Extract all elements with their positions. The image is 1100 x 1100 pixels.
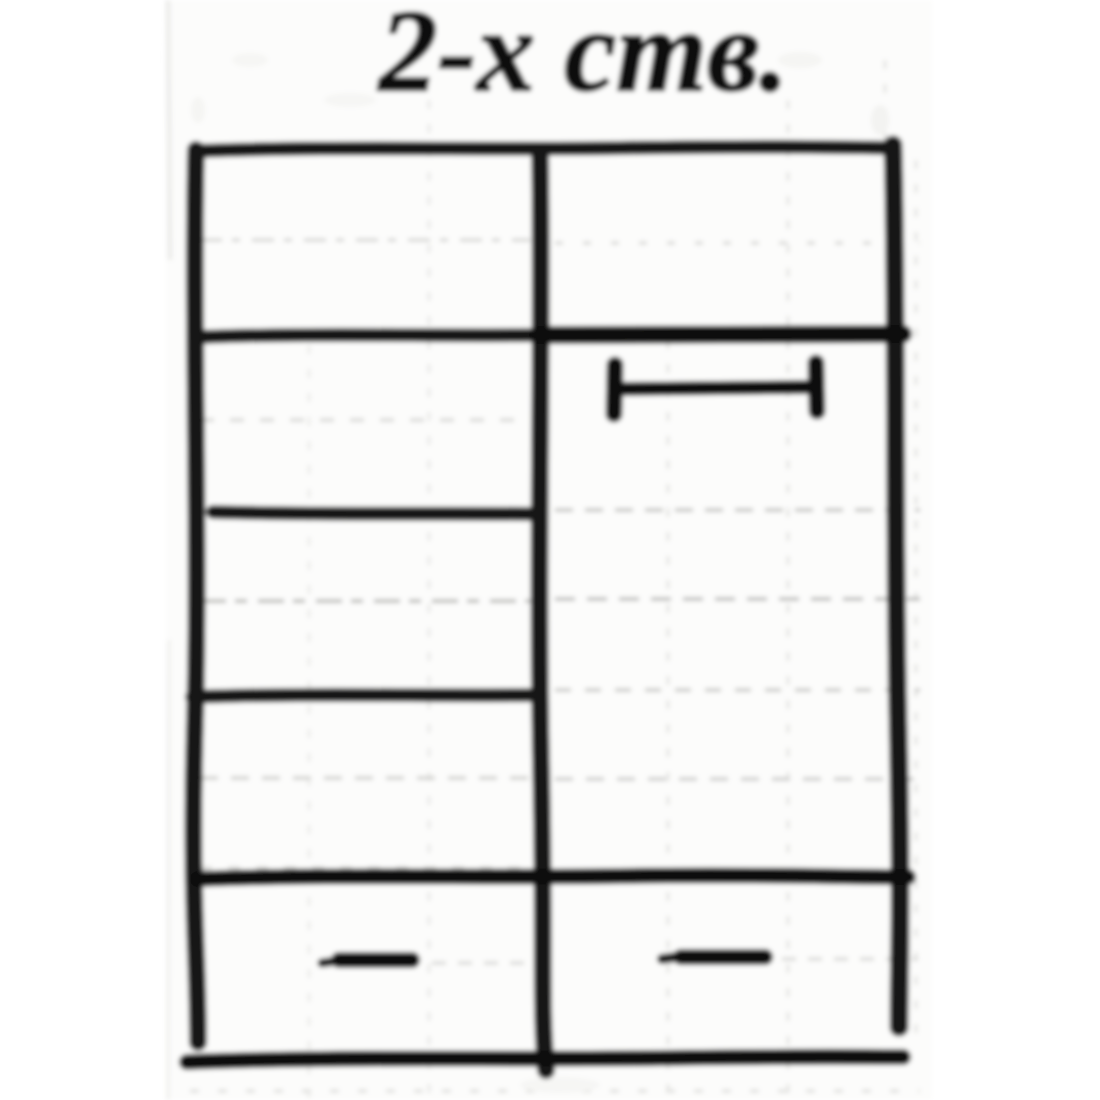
svg-text:2-х ств.: 2-х ств.: [377, 0, 789, 116]
